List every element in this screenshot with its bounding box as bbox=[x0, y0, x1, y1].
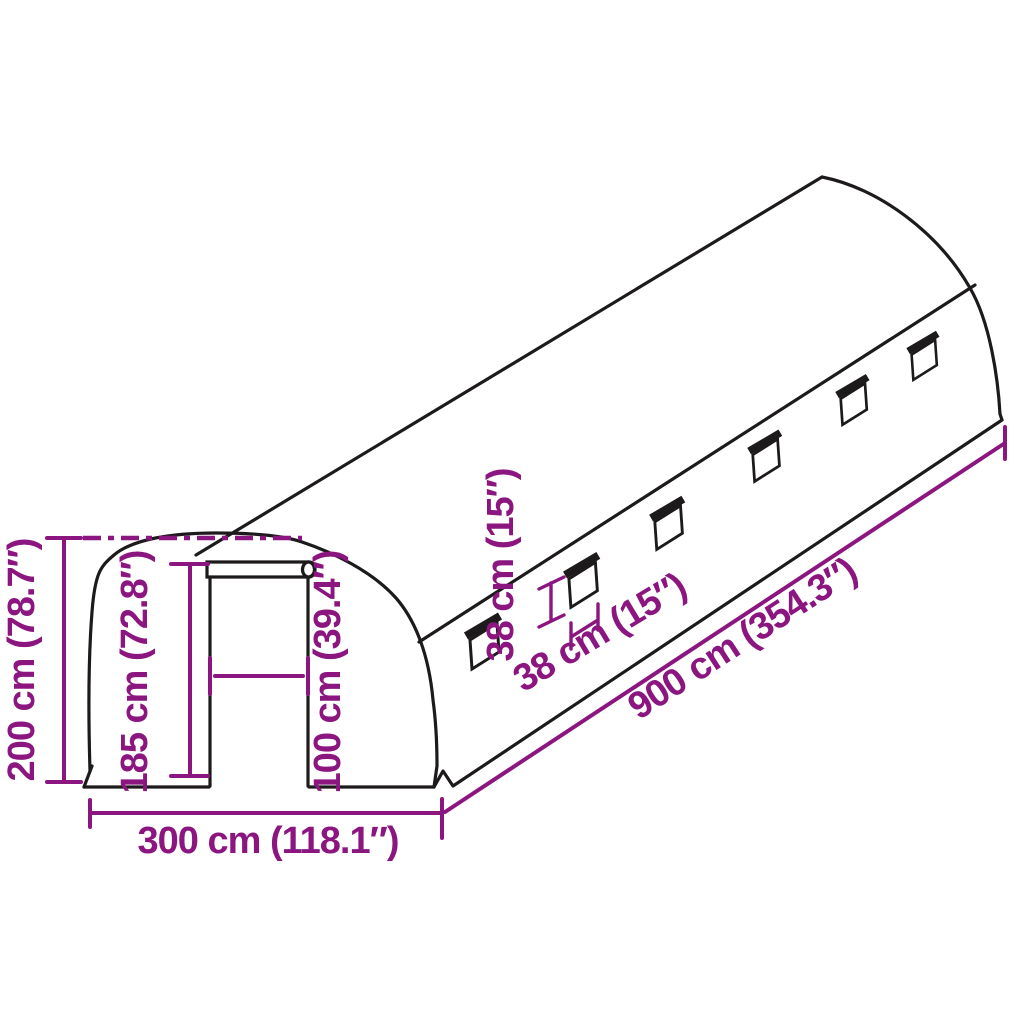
greenhouse-outline bbox=[84, 177, 1002, 787]
door-height-dim-line bbox=[171, 564, 208, 776]
rear-arch bbox=[822, 177, 1002, 420]
window-4 bbox=[749, 433, 780, 482]
dimension-label-width: 300 cm (118.1″) bbox=[138, 820, 399, 862]
total-height-dim-line bbox=[47, 538, 81, 782]
dimension-label-window-height: 38 cm (15″) bbox=[480, 468, 522, 661]
window-2 bbox=[565, 555, 598, 607]
window-height-dim-line bbox=[539, 577, 564, 627]
dimension-label-door-width: 100 cm (39.4″) bbox=[307, 551, 349, 794]
front-left-skirt bbox=[84, 766, 92, 787]
window-3 bbox=[651, 499, 683, 549]
dimension-diagram: 200 cm (78.7″) 185 cm (72.8″) 100 cm (39… bbox=[0, 0, 1024, 1024]
window-5 bbox=[837, 377, 868, 425]
dimension-lines bbox=[47, 427, 1005, 838]
length-dim-line bbox=[445, 427, 1005, 812]
window-6 bbox=[908, 334, 938, 380]
dimension-label-door-height: 185 cm (72.8″) bbox=[114, 551, 156, 794]
diagram-stage: 200 cm (78.7″) 185 cm (72.8″) 100 cm (39… bbox=[0, 0, 1024, 1024]
dimension-label-total-height: 200 cm (78.7″) bbox=[1, 539, 43, 782]
door-roll bbox=[207, 562, 315, 577]
dimension-labels: 200 cm (78.7″) 185 cm (72.8″) 100 cm (39… bbox=[1, 468, 864, 862]
door-width-dim-line bbox=[210, 658, 308, 694]
